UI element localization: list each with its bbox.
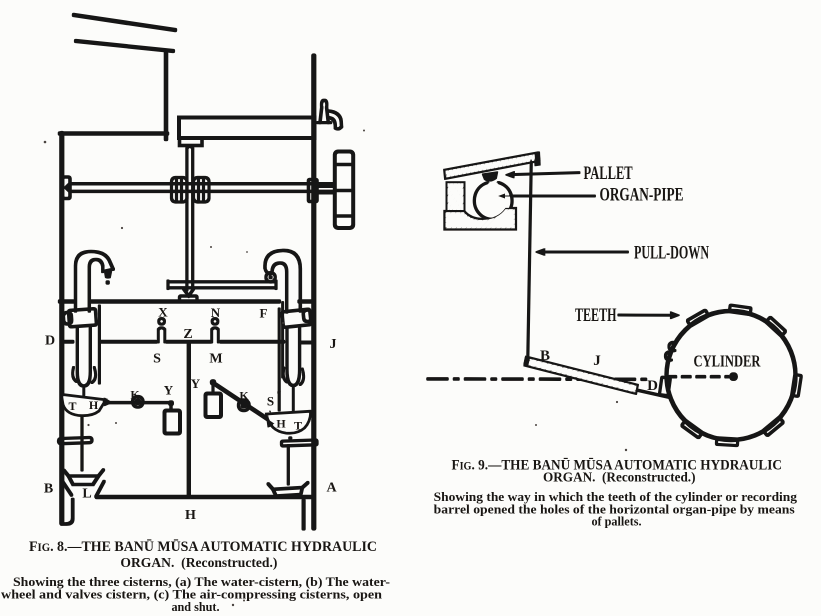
svg-text:ORGAN-PIPE: ORGAN-PIPE <box>600 184 684 205</box>
svg-text:X: X <box>158 305 168 320</box>
svg-text:T: T <box>68 399 76 413</box>
svg-text:ORGAN. (Reconstructed.): ORGAN. (Reconstructed.) <box>543 470 696 485</box>
svg-text:J: J <box>330 337 337 352</box>
svg-text:H: H <box>89 398 99 412</box>
svg-text:and shut.: and shut. <box>171 600 219 614</box>
svg-text:D: D <box>647 378 658 394</box>
svg-text:of pallets.: of pallets. <box>591 515 641 529</box>
svg-text:CYLINDER: CYLINDER <box>694 352 762 371</box>
svg-text:Y: Y <box>191 376 201 391</box>
svg-text:F: F <box>260 306 268 321</box>
svg-text:H: H <box>276 417 286 431</box>
svg-text:FIG. 8.—THE BANŪ MŪSA AUTOMATI: FIG. 8.—THE BANŪ MŪSA AUTOMATIC HYDRAULI… <box>29 539 377 555</box>
svg-text:PULL-DOWN: PULL-DOWN <box>634 242 710 263</box>
svg-text:D: D <box>45 334 55 349</box>
svg-text:ORGAN. (Reconstructed.): ORGAN. (Reconstructed.) <box>120 555 277 570</box>
svg-text:″: ″ <box>276 390 282 401</box>
svg-text:B: B <box>540 348 550 364</box>
svg-text:K: K <box>239 389 249 403</box>
svg-text:Y: Y <box>164 383 174 398</box>
svg-text:J: J <box>593 353 601 369</box>
svg-text:TEETH: TEETH <box>575 304 616 325</box>
svg-text:H: H <box>185 508 196 523</box>
svg-text:N: N <box>211 305 221 320</box>
svg-text:K: K <box>130 388 140 402</box>
svg-text:M: M <box>209 352 222 367</box>
svg-text:Z: Z <box>183 327 192 342</box>
svg-text:L: L <box>82 487 91 502</box>
svg-text:B: B <box>44 482 53 497</box>
svg-text:T: T <box>294 419 302 433</box>
svg-text:PALLET: PALLET <box>584 162 634 183</box>
svg-text:S: S <box>153 352 161 367</box>
svg-text:A: A <box>326 481 337 496</box>
